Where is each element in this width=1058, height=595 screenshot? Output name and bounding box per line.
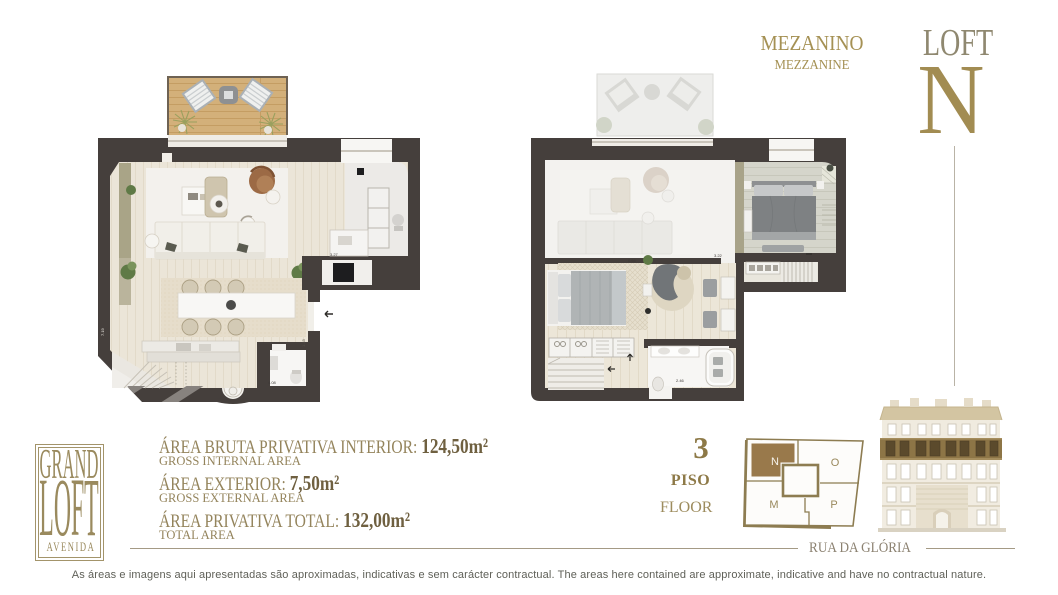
svg-text:4.08: 4.08 — [268, 380, 277, 385]
svg-text:LOFT: LOFT — [39, 463, 98, 554]
svg-text:2.46: 2.46 — [676, 378, 685, 383]
svg-text:3.22: 3.22 — [714, 253, 723, 258]
svg-text:1.43: 1.43 — [301, 338, 306, 347]
svg-text:M: M — [769, 499, 778, 511]
svg-text:O: O — [831, 457, 840, 469]
svg-text:AVENIDA: AVENIDA — [47, 542, 96, 555]
svg-text:P: P — [830, 499, 837, 511]
svg-text:3.27: 3.27 — [330, 252, 339, 257]
svg-text:7.19: 7.19 — [100, 327, 105, 336]
svg-text:0.65: 0.65 — [628, 258, 637, 263]
svg-text:N: N — [771, 456, 779, 468]
